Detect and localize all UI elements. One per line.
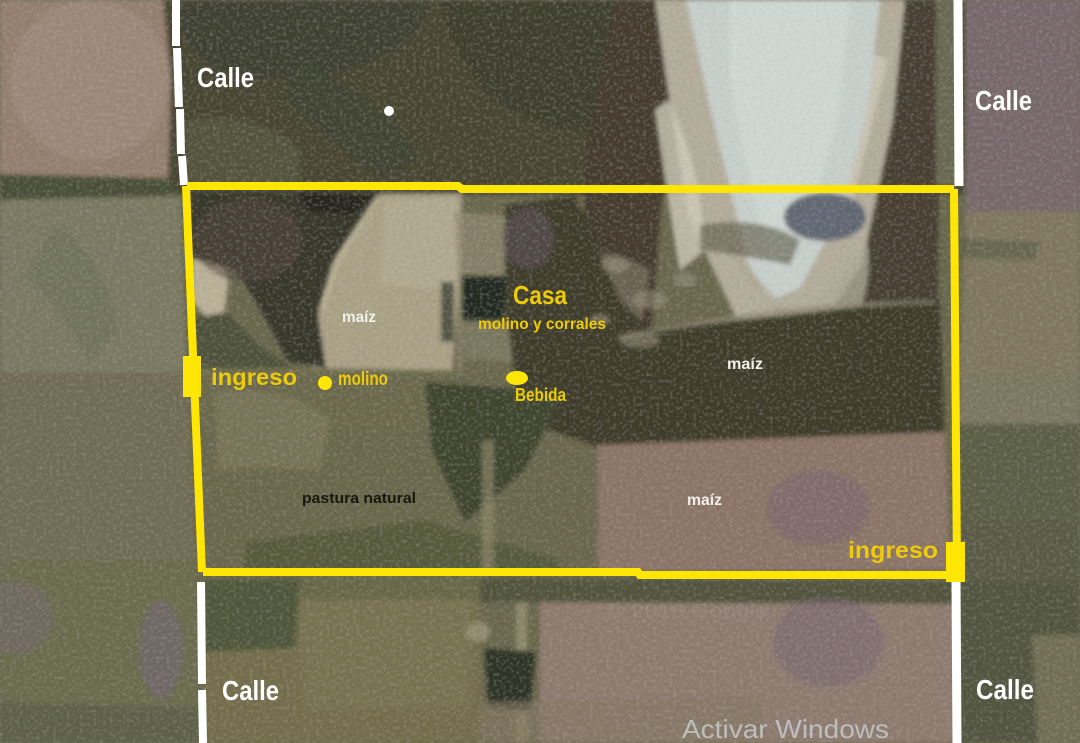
- svg-text:Calle: Calle: [975, 85, 1032, 116]
- svg-text:maíz: maíz: [727, 356, 763, 373]
- svg-text:ingreso: ingreso: [848, 537, 938, 563]
- svg-text:Calle: Calle: [197, 62, 254, 93]
- svg-text:© 2016 Google: © 2016 Google: [607, 601, 768, 621]
- svg-text:molino y corrales: molino y corrales: [478, 316, 606, 333]
- svg-text:pastura natural: pastura natural: [302, 490, 416, 507]
- svg-text:ingreso: ingreso: [211, 364, 297, 390]
- svg-text:Casa: Casa: [513, 280, 567, 310]
- svg-text:maíz: maíz: [342, 309, 376, 326]
- svg-text:Calle: Calle: [976, 674, 1034, 705]
- svg-text:Calle: Calle: [222, 675, 279, 706]
- svg-text:Activar Windows: Activar Windows: [682, 714, 889, 743]
- svg-text:Bebida: Bebida: [515, 385, 567, 405]
- svg-text:maíz: maíz: [687, 492, 722, 509]
- svg-text:molino: molino: [338, 369, 388, 390]
